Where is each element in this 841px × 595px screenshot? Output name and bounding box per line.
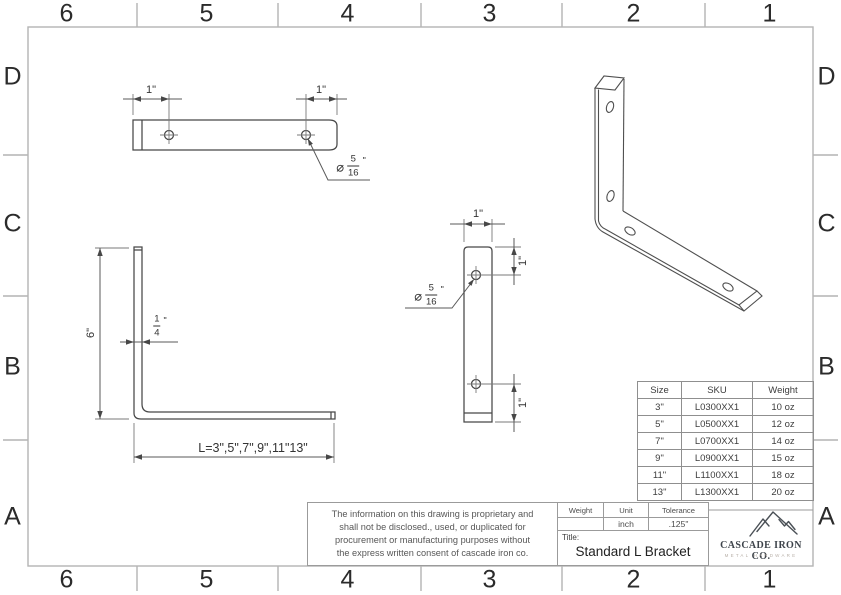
- title-label: Title:: [562, 533, 579, 542]
- hole: [605, 101, 615, 114]
- fraction: 5 16: [425, 284, 438, 307]
- table-cell: 15 oz: [753, 450, 814, 467]
- notice-line: procurement or manufacturing purposes wi…: [335, 534, 530, 547]
- spec-value-tolerance: .125": [648, 517, 709, 531]
- inch-mark: ": [441, 286, 444, 295]
- table-cell: 12 oz: [753, 416, 814, 433]
- table-cell: 20 oz: [753, 484, 814, 501]
- zone-col-label: 4: [341, 566, 356, 595]
- spec-header-unit: Unit: [603, 502, 649, 518]
- fraction: 5 16: [347, 155, 360, 178]
- zone-col-label: 2: [627, 0, 642, 29]
- diameter-icon: ⌀: [336, 161, 344, 174]
- dim-width: 1": [473, 208, 483, 220]
- table-row: 11" L1100XX1 18 oz: [638, 467, 814, 484]
- zone-col-label: 6: [60, 0, 75, 29]
- table-cell: 5": [638, 416, 682, 433]
- table-cell: L0500XX1: [682, 416, 753, 433]
- front-view-drawing: [405, 219, 521, 432]
- zone-row-label: A: [4, 503, 22, 532]
- zone-row-label: A: [818, 503, 836, 532]
- proprietary-notice: The information on this drawing is propr…: [307, 502, 558, 566]
- hole: [623, 225, 636, 237]
- table-row: 3" L0300XX1 10 oz: [638, 399, 814, 416]
- table-cell: 11": [638, 467, 682, 484]
- zone-row-label: D: [817, 63, 836, 92]
- notice-line: shall not be disclosed., used, or duplic…: [339, 521, 525, 534]
- centermarks: [133, 94, 337, 144]
- table-cell: 14 oz: [753, 433, 814, 450]
- zone-col-label: 5: [200, 0, 215, 29]
- table-cell: 10 oz: [753, 399, 814, 416]
- table-cell: 13": [638, 484, 682, 501]
- table-header-row: Size SKU Weight: [638, 382, 814, 399]
- zone-row-label: B: [818, 353, 836, 382]
- table-row: 5" L0500XX1 12 oz: [638, 416, 814, 433]
- fraction-numerator: 5: [350, 155, 357, 165]
- hole: [606, 190, 616, 203]
- top-view-drawing: [123, 94, 370, 180]
- fraction-numerator: 5: [428, 284, 435, 294]
- table-header-cell: Size: [638, 382, 682, 399]
- fraction-bar: [425, 295, 438, 296]
- title-cell: Title: Standard L Bracket: [557, 530, 709, 566]
- table-row: 13" L1300XX1 20 oz: [638, 484, 814, 501]
- drawing-title: Standard L Bracket: [558, 544, 708, 559]
- inch-mark: ": [164, 317, 167, 326]
- hole: [721, 281, 734, 293]
- dim-bottom-hole-offset: 1": [517, 398, 529, 408]
- table-cell: L0700XX1: [682, 433, 753, 450]
- dimension-lines: [123, 99, 370, 180]
- table-cell: L1100XX1: [682, 467, 753, 484]
- spec-value-unit: inch: [603, 517, 649, 531]
- mountains-icon: [750, 512, 797, 536]
- table-cell: L0900XX1: [682, 450, 753, 467]
- table-cell: 18 oz: [753, 467, 814, 484]
- notice-line: The information on this drawing is propr…: [332, 508, 534, 521]
- isometric-view-drawing: [595, 76, 762, 311]
- company-tagline: METAL HARDWARE: [712, 553, 810, 558]
- inch-mark: ": [363, 157, 366, 166]
- thickness-note: 1 4 ": [153, 315, 167, 338]
- spec-value-weight: [557, 517, 604, 531]
- zone-col-label: 1: [763, 566, 778, 595]
- zone-col-label: 4: [341, 0, 356, 29]
- spec-header-weight: Weight: [557, 502, 604, 518]
- table-row: 7" L0700XX1 14 oz: [638, 433, 814, 450]
- table-cell: 7": [638, 433, 682, 450]
- hole-diameter-note: ⌀ 5 16 ": [336, 155, 366, 178]
- zone-row-label: B: [4, 353, 22, 382]
- table-cell: 9": [638, 450, 682, 467]
- fraction-denominator: 16: [347, 168, 360, 178]
- fraction-denominator: 16: [425, 297, 438, 307]
- zone-col-label: 3: [483, 0, 498, 29]
- table-cell: L1300XX1: [682, 484, 753, 501]
- table-row: 9" L0900XX1 15 oz: [638, 450, 814, 467]
- fraction-bar: [347, 166, 360, 167]
- table-header-cell: SKU: [682, 382, 753, 399]
- fraction: 1 4: [153, 315, 160, 338]
- zone-row-label: C: [3, 210, 22, 239]
- zone-col-label: 2: [627, 566, 642, 595]
- drawing-sheet: 6 5 4 3 2 1 6 5 4 3 2 1 D C B A D C B A …: [0, 0, 841, 595]
- fraction-denominator: 4: [153, 328, 160, 338]
- side-view-drawing: [95, 247, 335, 463]
- dim-leg-height: 6": [85, 328, 97, 338]
- spec-header-tolerance: Tolerance: [648, 502, 709, 518]
- zone-col-label: 6: [60, 566, 75, 595]
- fraction-numerator: 1: [153, 315, 160, 325]
- table-cell: L0300XX1: [682, 399, 753, 416]
- zone-col-label: 3: [483, 566, 498, 595]
- diameter-icon: ⌀: [414, 290, 422, 303]
- zone-row-label: C: [817, 210, 836, 239]
- dim-hole-offset-right: 1": [316, 84, 326, 96]
- size-table: Size SKU Weight 3" L0300XX1 10 oz 5" L05…: [637, 381, 814, 501]
- table-cell: 3": [638, 399, 682, 416]
- zone-row-label: D: [3, 63, 22, 92]
- fraction-bar: [153, 326, 160, 327]
- zone-col-label: 1: [763, 0, 778, 29]
- dim-hole-offset-left: 1": [146, 84, 156, 96]
- notice-line: the express written consent of cascade i…: [337, 547, 529, 560]
- dim-top-hole-offset: 1": [517, 256, 529, 266]
- table-header-cell: Weight: [753, 382, 814, 399]
- zone-col-label: 5: [200, 566, 215, 595]
- dim-length-options: L=3",5",7",9",11"13": [198, 441, 307, 455]
- company-logo-text: CASCADE IRON CO.: [712, 540, 810, 562]
- hole-diameter-note: ⌀ 5 16 ": [414, 284, 444, 307]
